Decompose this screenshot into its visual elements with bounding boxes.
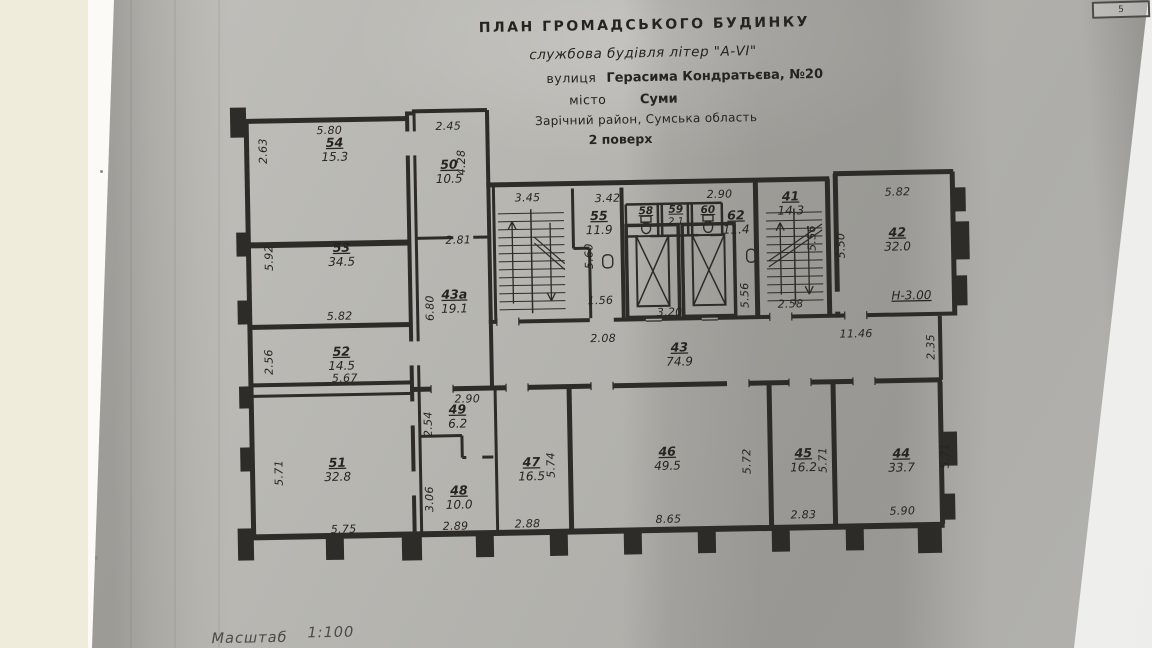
scale-label: Масштаб: [211, 630, 287, 647]
dim: 5.50: [834, 233, 847, 259]
room-number: 43: [669, 339, 688, 354]
title-block: ПЛАН ГРОМАДСЬКОГО БУДИНКУ службова будів…: [479, 14, 825, 149]
dim: 2.83: [790, 508, 816, 521]
dim: 3.20: [657, 305, 683, 318]
dim: 2.45: [435, 120, 461, 133]
room-area: 10.0: [446, 497, 473, 511]
room-area: 49.5: [654, 459, 681, 473]
dim: 5.71: [938, 443, 951, 469]
dim: 5.71: [816, 447, 829, 473]
street-value: Герасима Кондратьєва, №20: [606, 67, 823, 86]
dim: 2.35: [924, 334, 937, 360]
floor-label: 2 поверх: [589, 131, 653, 147]
dim: 5.60: [582, 243, 595, 269]
paper-speck: [100, 170, 103, 173]
dim: 5.56: [738, 282, 751, 308]
dim: 6.80: [423, 295, 436, 321]
paper-speck: [95, 556, 98, 560]
room-number: 54: [326, 135, 344, 150]
room-area: 74.9: [666, 354, 693, 368]
building-type: службова будівля літер "А-VI": [529, 43, 757, 63]
room-number: 48: [449, 482, 468, 497]
dim: 2.81: [445, 233, 471, 246]
dim: 5.67: [332, 371, 358, 384]
room-number: 53: [333, 240, 351, 255]
dim: 5.82: [885, 185, 911, 198]
district-line: Зарічний район, Сумська область: [535, 110, 758, 128]
scanned-floor-plan-photo: ПЛАН ГРОМАДСЬКОГО БУДИНКУ службова будів…: [0, 0, 1152, 648]
dim: 5.72: [740, 448, 753, 474]
staircase-left: [498, 209, 566, 314]
dim: 5.90: [889, 504, 915, 517]
dim: 11.46: [839, 327, 872, 341]
room-area: 32.0: [884, 239, 911, 253]
dim: 2.63: [256, 138, 269, 164]
room-number: 43а: [440, 286, 467, 301]
room-area: 16.5: [518, 469, 545, 483]
height-mark: Н-3.00: [891, 288, 932, 303]
dim: 2.90: [454, 392, 480, 405]
room-number: 60: [700, 204, 715, 216]
room-number: 59: [668, 203, 683, 215]
room-area: 19.1: [441, 301, 468, 315]
room-number: 47: [522, 454, 541, 469]
dim: 8.65: [656, 513, 682, 526]
dim: 4.28: [455, 150, 468, 176]
room-area: 33.7: [888, 460, 915, 474]
room-area: 32.8: [324, 470, 351, 484]
dim: 1.56: [587, 294, 613, 307]
plan-content: ПЛАН ГРОМАДСЬКОГО БУДИНКУ службова будів…: [0, 0, 1152, 648]
dim: 3.06: [423, 486, 436, 512]
scale-value: 1:100: [307, 625, 354, 642]
room-number: 46: [657, 444, 676, 459]
room-area: 15.3: [321, 150, 348, 164]
street-label: вулиця: [546, 70, 596, 86]
sink-icon: [603, 255, 613, 268]
room-number: 42: [887, 224, 906, 239]
dim: 2.88: [515, 517, 541, 530]
dim: 2.90: [707, 188, 733, 201]
room-area: 11.4: [723, 222, 750, 236]
floor-plan-drawing: ПЛАН ГРОМАДСЬКОГО БУДИНКУ службова будів…: [0, 0, 1152, 648]
room-area: 34.5: [328, 254, 355, 268]
room-number: 62: [727, 207, 745, 222]
room-area: 6.2: [448, 416, 467, 430]
city-value: Суми: [640, 92, 678, 108]
dim: 2.56: [262, 349, 275, 375]
dim: 2.08: [590, 332, 616, 345]
plan-title: ПЛАН ГРОМАДСЬКОГО БУДИНКУ: [479, 14, 810, 36]
dim: 2.54: [421, 411, 434, 437]
room-number: 51: [329, 455, 347, 470]
room-number: 55: [590, 208, 608, 223]
dim: 5.82: [327, 310, 353, 323]
room-area: 16.2: [790, 460, 817, 474]
room-number: 52: [333, 344, 351, 359]
dim: 5.56: [805, 225, 818, 251]
dim: 5.71: [272, 460, 285, 486]
dim: 5.92: [262, 245, 275, 271]
dim: 3.45: [515, 191, 541, 204]
room-number: 45: [793, 445, 812, 460]
dim: 3.42: [595, 192, 621, 205]
room-number: 41: [781, 188, 800, 203]
room-number: 44: [891, 445, 910, 460]
dim: 2.58: [778, 297, 804, 310]
room-number: 58: [638, 205, 653, 217]
city-label: місто: [569, 92, 606, 108]
room-area: 11.9: [586, 223, 613, 237]
scale-note: Масштаб 1:100: [211, 625, 354, 648]
page-number-box: 5: [1092, 0, 1150, 19]
page-number: 5: [1118, 4, 1124, 14]
dim: 5.80: [316, 124, 342, 137]
dim: 2.89: [443, 519, 469, 532]
dim: 5.74: [544, 452, 557, 478]
staircase-right: [766, 208, 824, 305]
room-area: 2.1: [668, 216, 684, 227]
room-area: 14.3: [777, 203, 804, 217]
dim: 5.75: [331, 522, 357, 535]
